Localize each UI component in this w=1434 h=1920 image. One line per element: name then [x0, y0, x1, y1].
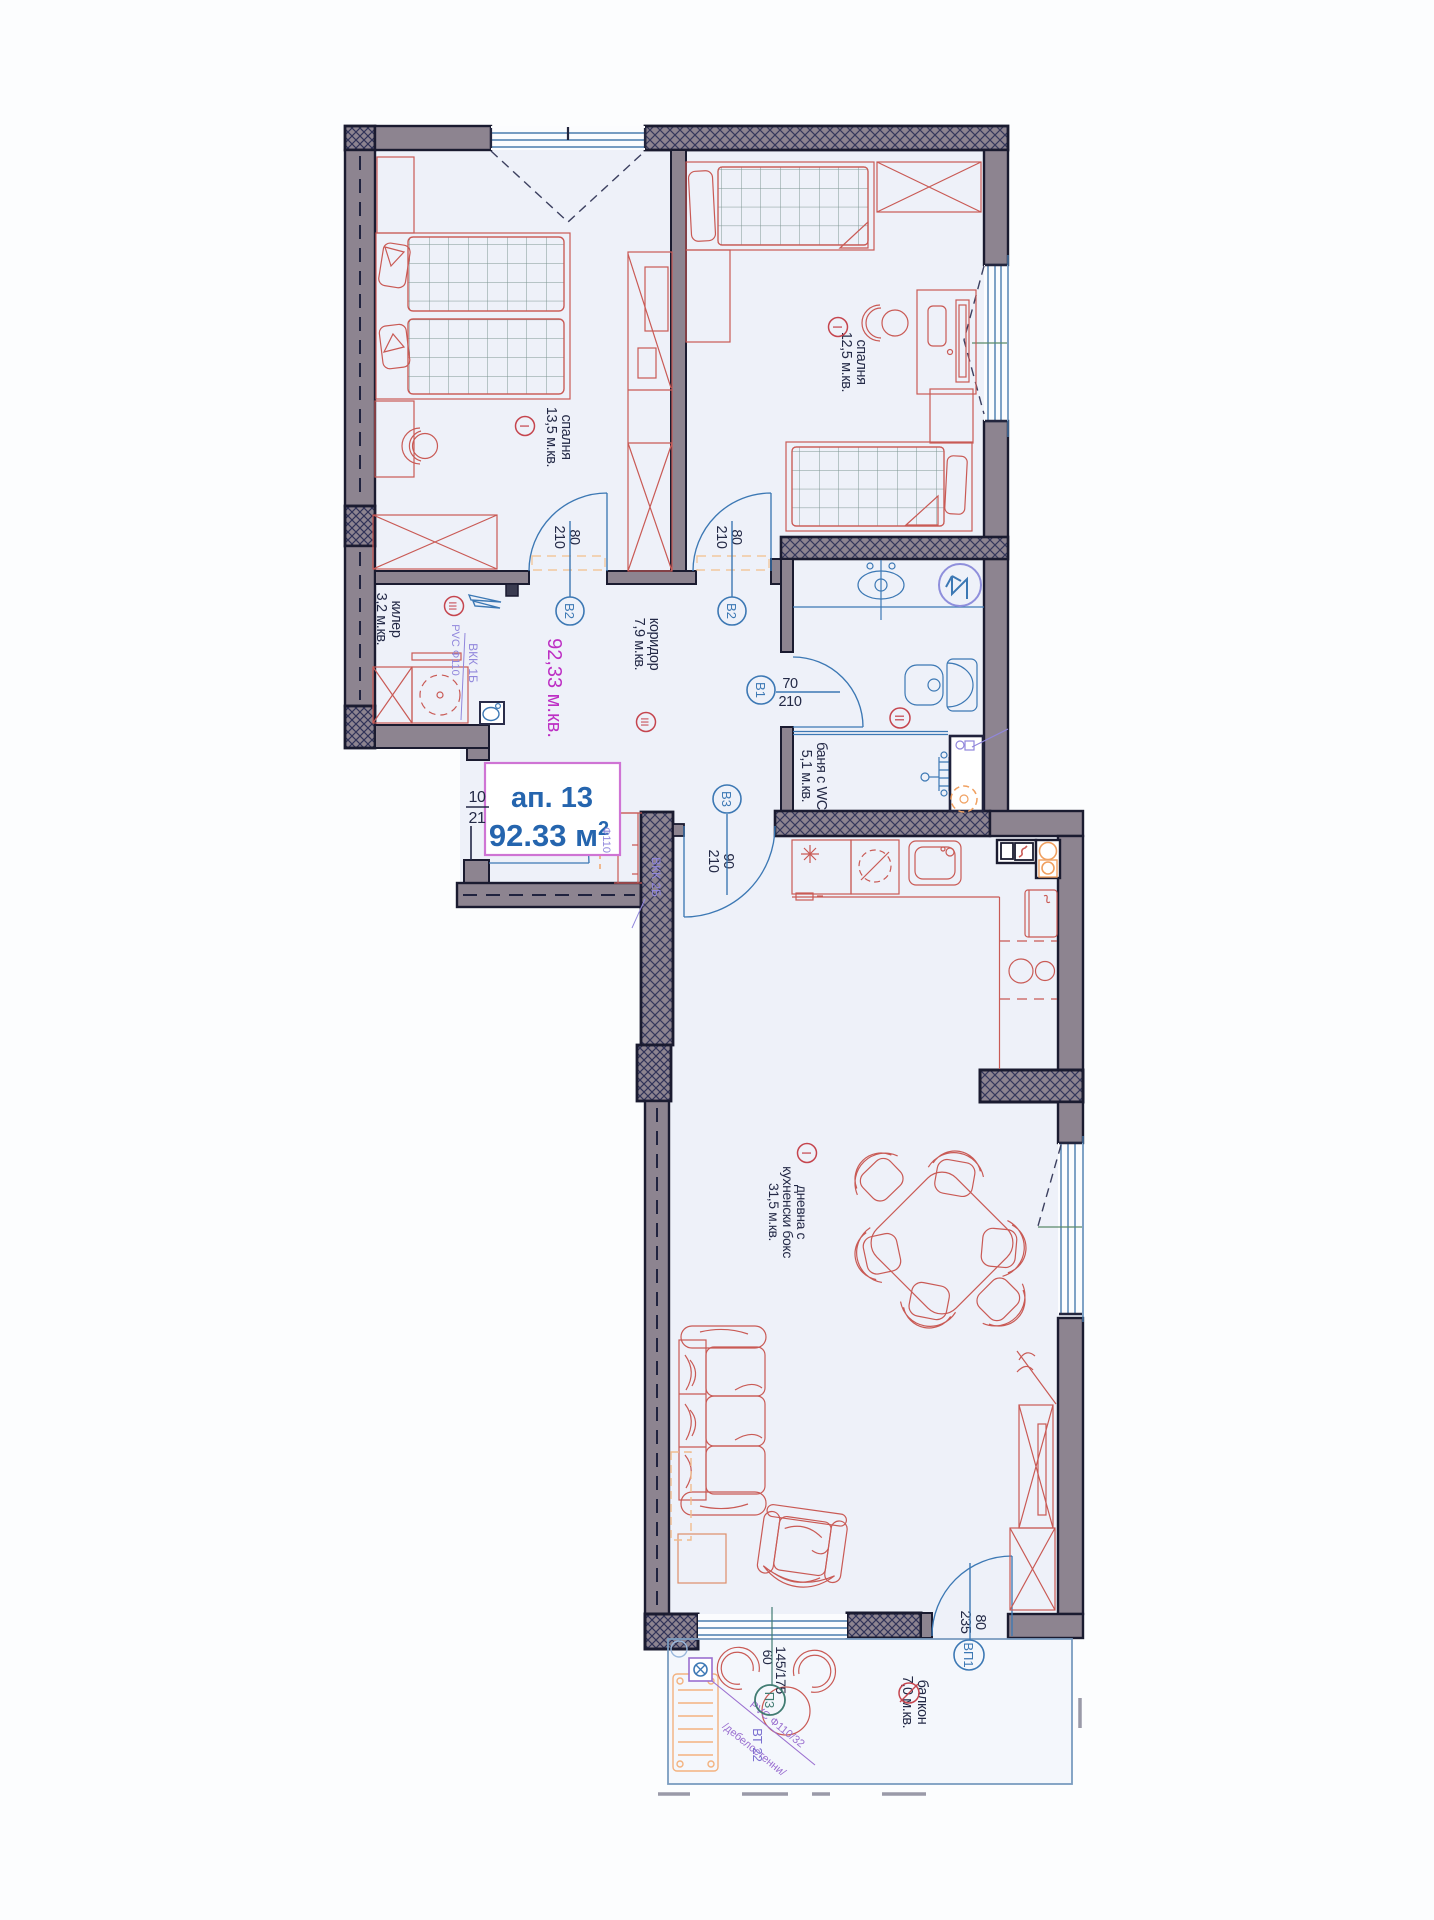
svg-text:коридор7,9 м.кв.: коридор7,9 м.кв.	[631, 618, 662, 671]
svg-text:60: 60	[760, 1650, 776, 1665]
svg-text:Ф110: Ф110	[600, 827, 612, 853]
svg-text:В2: В2	[562, 603, 577, 619]
svg-text:10: 10	[469, 789, 486, 806]
svg-text:ВКК 1Б: ВКК 1Б	[466, 643, 480, 683]
svg-text:ВТ 22: ВТ 22	[750, 1728, 765, 1762]
svg-text:ВКК 2Б: ВКК 2Б	[649, 857, 663, 897]
svg-text:III: III	[638, 717, 650, 726]
svg-text:III: III	[446, 601, 458, 610]
svg-text:ап. 13: ап. 13	[511, 782, 593, 814]
svg-text:ВП1: ВП1	[961, 1642, 976, 1667]
svg-text:В2: В2	[724, 603, 739, 619]
svg-text:спалня13,5 м.кв.: спалня13,5 м.кв.	[543, 407, 574, 467]
svg-text:килер3,2 м.кв.: килер3,2 м.кв.	[373, 593, 404, 646]
svg-text:PVC Ф110: PVC Ф110	[449, 624, 461, 676]
svg-text:92,33 м.кв.: 92,33 м.кв.	[543, 638, 565, 738]
svg-text:92.33 м2: 92.33 м2	[489, 818, 609, 853]
svg-text:баня с WC5,1 м.кв.: баня с WC5,1 м.кв.	[798, 742, 829, 810]
svg-text:II: II	[892, 714, 907, 721]
svg-text:В1: В1	[753, 682, 768, 698]
svg-text:I: I	[830, 325, 845, 329]
svg-text:В3: В3	[719, 791, 734, 807]
svg-text:210: 210	[779, 694, 802, 710]
svg-text:70: 70	[782, 676, 798, 692]
svg-text:спалня12,5 м.кв.: спалня12,5 м.кв.	[838, 332, 869, 392]
svg-text:I: I	[517, 424, 532, 428]
svg-text:П3: П3	[762, 1692, 777, 1709]
svg-text:21: 21	[469, 810, 486, 827]
svg-text:I: I	[799, 1151, 814, 1155]
